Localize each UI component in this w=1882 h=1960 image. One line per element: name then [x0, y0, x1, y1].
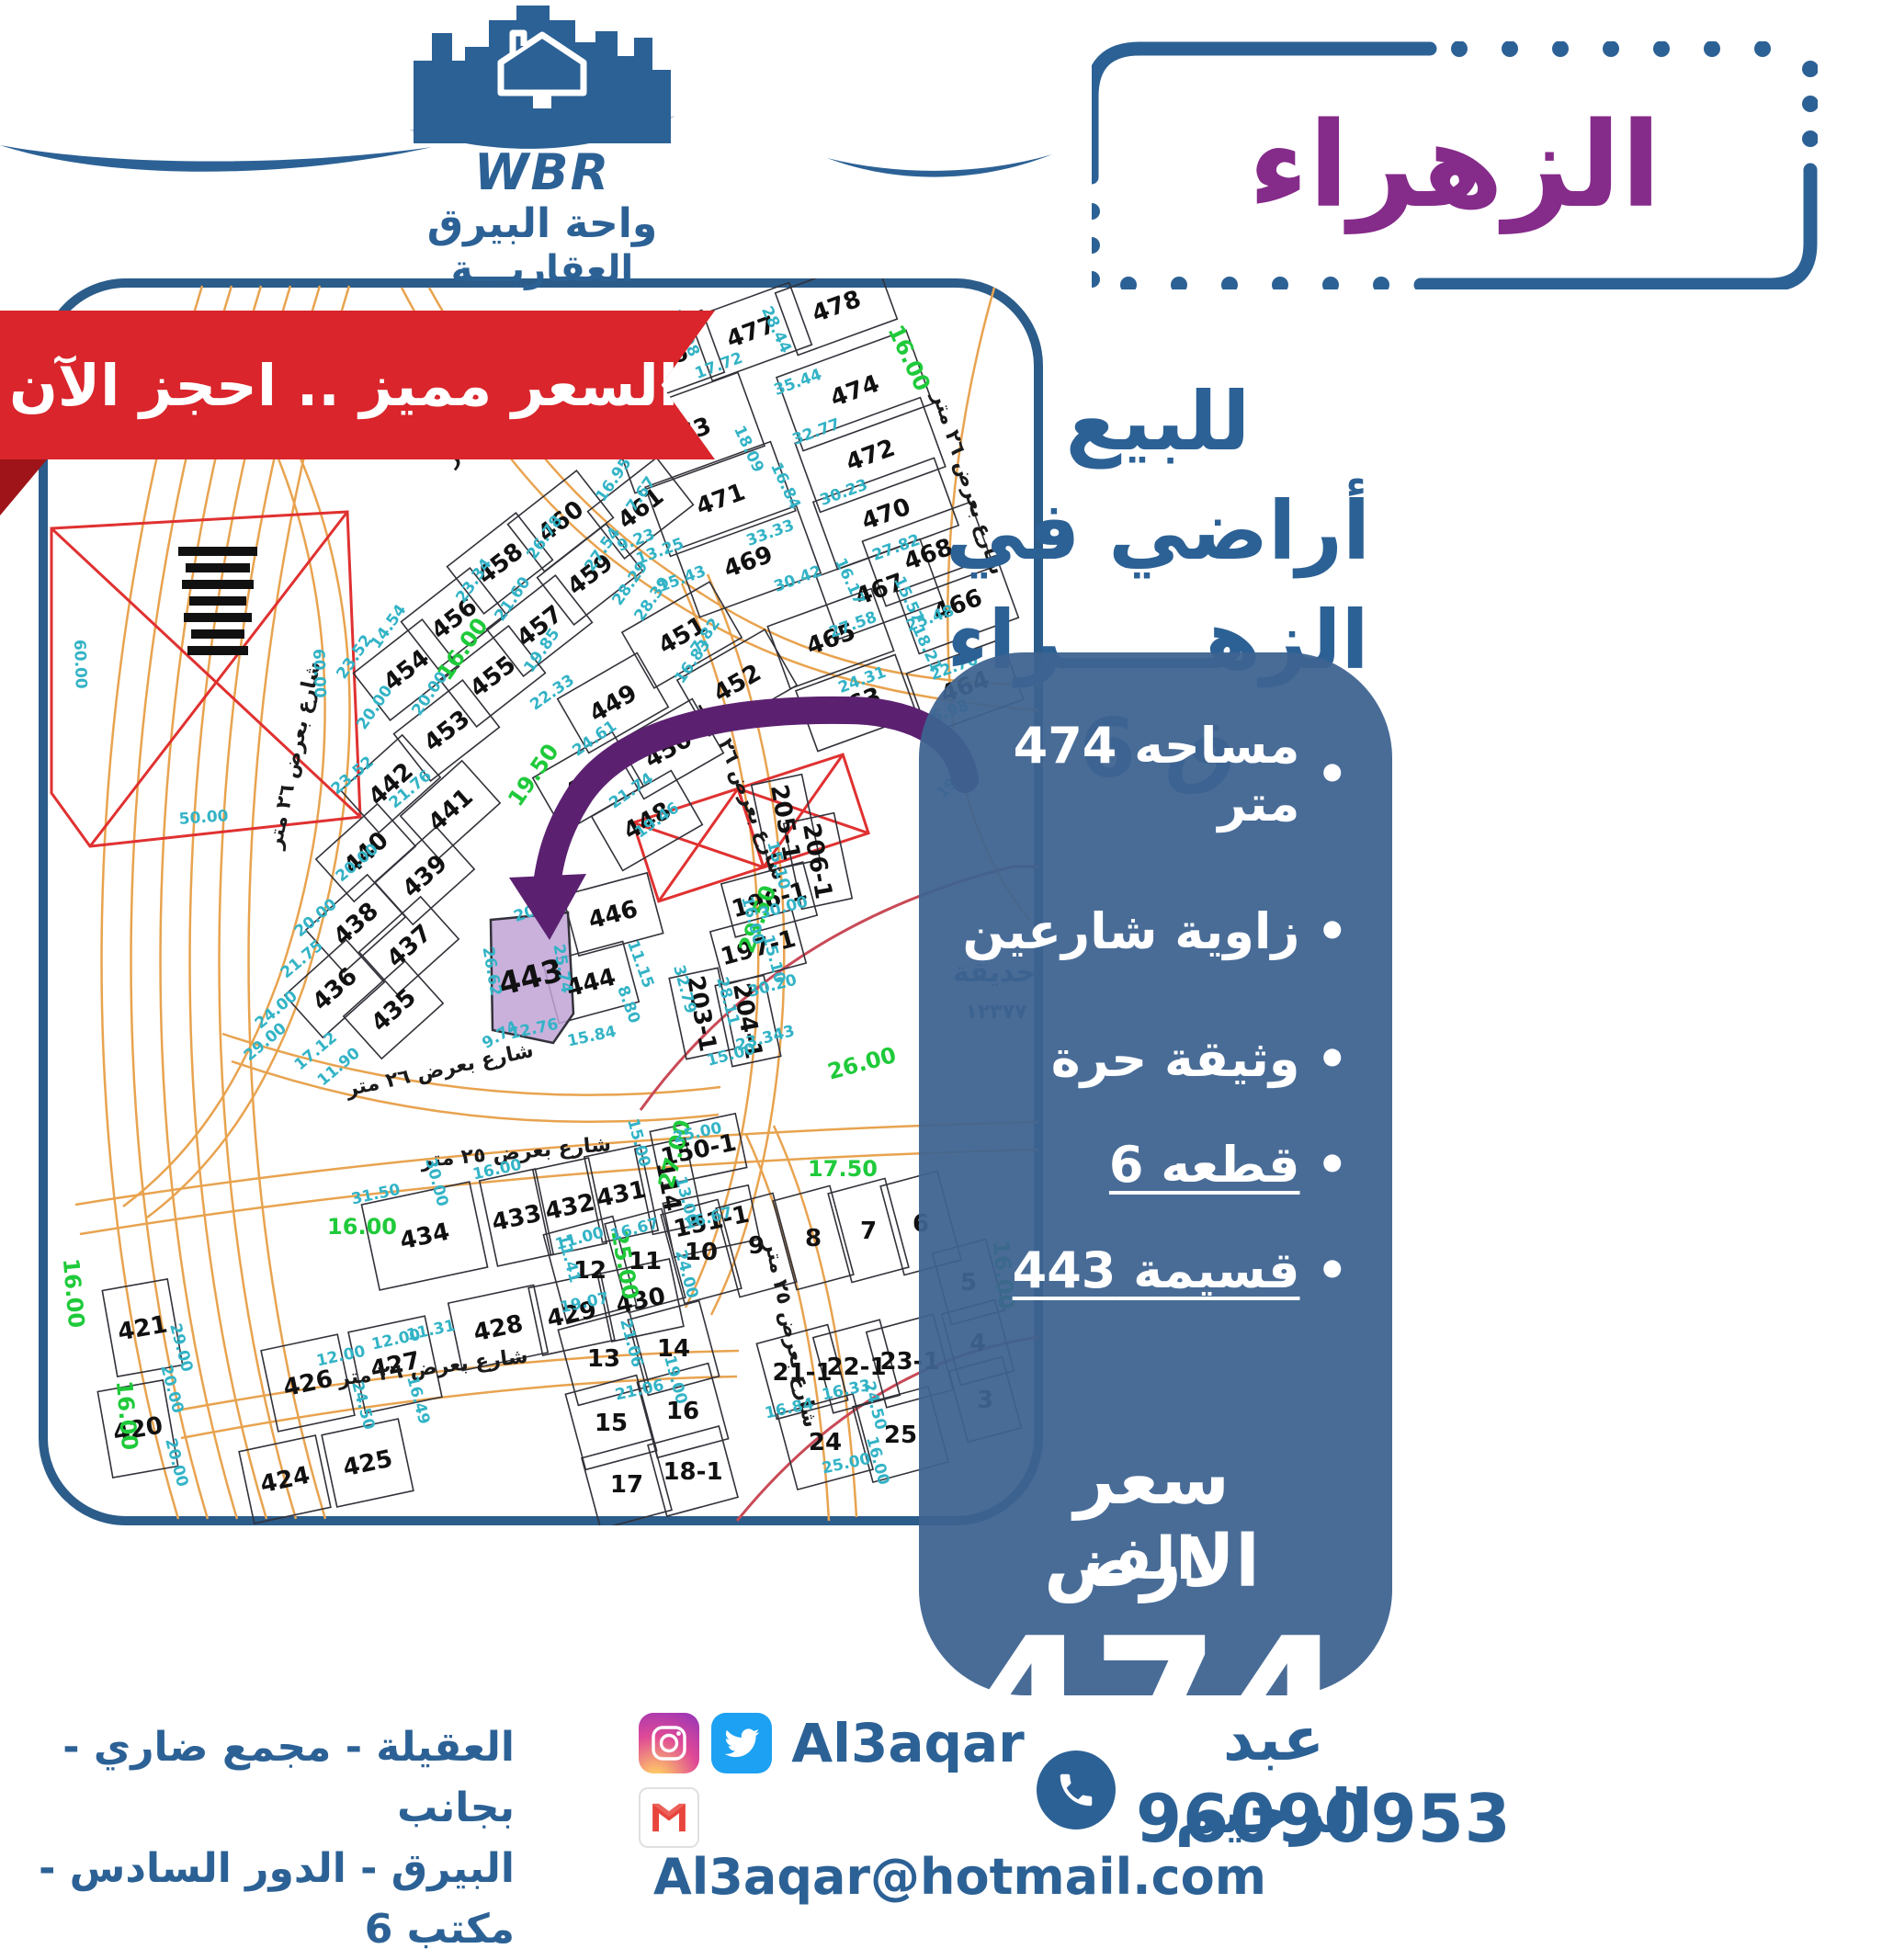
address-line2: البيرق - الدور السادس - مكتب 6 [37, 1839, 515, 1960]
cadastral-map: حديقة ١٢٣٧٧ 443 475476477478474473472471… [39, 278, 1043, 1525]
logo-skyline-icon [404, 6, 680, 153]
bullet-dot-icon: • [1316, 1035, 1348, 1084]
promo-banner-text: السعر مميز .. احجز الآن [9, 352, 706, 419]
brand-name-line2: العقاريـــة [368, 248, 717, 290]
feature-bullet-4: •قطعه 6 [956, 1136, 1348, 1194]
feature-bullet-1: •مساحه 474 متر [956, 717, 1348, 833]
office-address: العقيلة - مجمع ضاري - بجانب البيرق - الد… [37, 1717, 515, 1960]
right-swoosh-decoration [827, 138, 1057, 193]
promo-banner: السعر مميز .. احجز الآن [0, 311, 715, 459]
footer: العقيلة - مجمع ضاري - بجانب البيرق - الد… [0, 1695, 1882, 1882]
dimension-label: 50.00 [178, 807, 229, 829]
address-line1: العقيلة - مجمع ضاري - بجانب [37, 1717, 515, 1839]
phone-icon-wrap [1037, 1750, 1116, 1830]
bullet-dot-icon: • [1316, 1140, 1348, 1190]
company-logo: WBR واحة البيرق العقاريـــة [368, 6, 717, 290]
plot-label-17: 17 [610, 1471, 643, 1499]
brand-name-line1: واحة البيرق [368, 201, 717, 248]
dimension-label: 60.00 [70, 640, 90, 690]
bullet-dot-icon: • [1316, 907, 1348, 957]
plot-label-18-1: 18-1 [663, 1458, 722, 1486]
road-width-label: 16.00 [327, 1214, 397, 1240]
heading-line1: للبيع أراضي في [928, 368, 1388, 586]
plot-label-24: 24 [809, 1429, 842, 1456]
feature-bullet-3: •وثيقة حرة [956, 1030, 1348, 1088]
feature-bullet-2: •زاوية شارعين [956, 902, 1348, 960]
plot-label-22-1: 22-1 [826, 1354, 886, 1381]
social-links: Al3aqar Al3aqar@hotmail.com [639, 1712, 1061, 1906]
agent-phone[interactable]: 96090953 [1136, 1780, 1411, 1857]
plot-label-7: 7 [860, 1218, 877, 1245]
road-width-label: 17.50 [808, 1156, 878, 1182]
dimension-label: 60.00 [309, 649, 329, 699]
plot-label-8: 8 [805, 1225, 822, 1252]
instagram-icon[interactable] [639, 1713, 699, 1773]
bullet-dot-icon: • [1316, 750, 1348, 799]
feature-list: •مساحه 474 متر•زاوية شارعين•وثيقة حرة•قط… [956, 717, 1348, 1299]
gmail-icon[interactable] [639, 1787, 699, 1848]
social-handle[interactable]: Al3aqar [791, 1712, 1025, 1774]
bullet-dot-icon: • [1316, 1246, 1348, 1296]
twitter-icon[interactable] [711, 1713, 772, 1773]
phone-icon [1037, 1750, 1116, 1830]
feature-bullet-5: •قسيمة 443 [956, 1241, 1348, 1299]
details-panel: •مساحه 474 متر•زاوية شارعين•وثيقة حرة•قط… [919, 652, 1392, 1695]
plot-label-15: 15 [595, 1410, 628, 1437]
project-title-box: الزهراء [1092, 41, 1818, 289]
price-unit: الف [1083, 1525, 1196, 1593]
project-title: الزهراء [1092, 41, 1818, 289]
ribbon-fold [0, 459, 48, 515]
plot-label-13: 13 [587, 1345, 620, 1373]
